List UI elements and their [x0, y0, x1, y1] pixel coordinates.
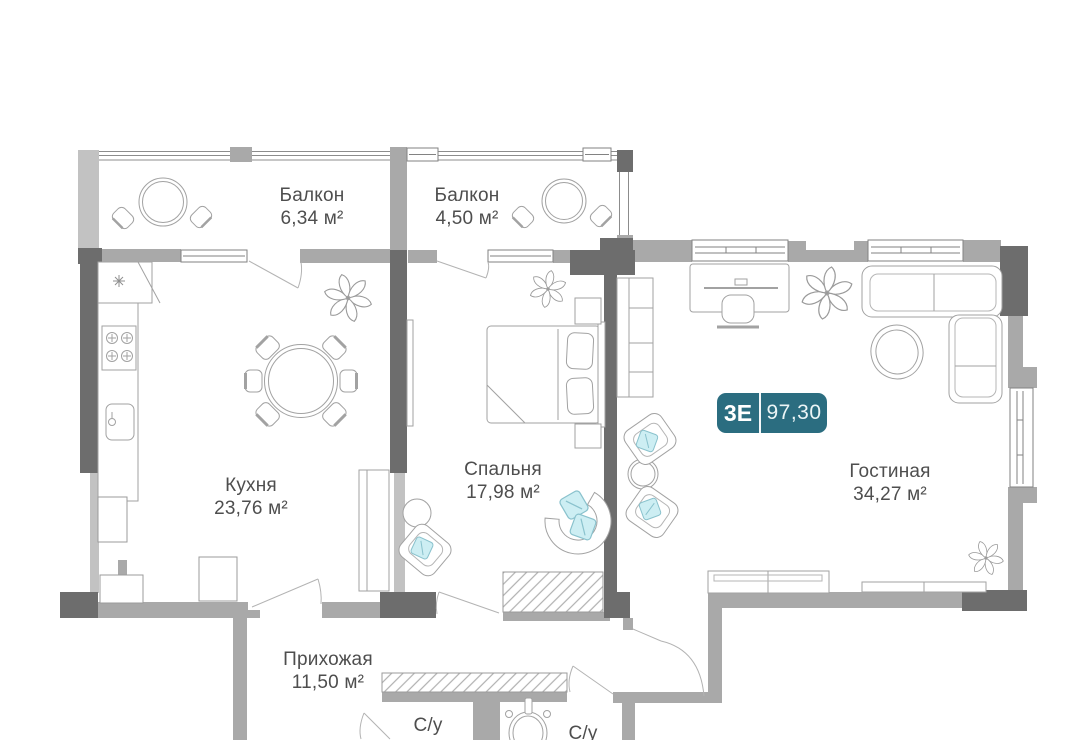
plan-badge: 3Е 97,30	[717, 393, 827, 433]
room-label-kitchen: Кухня 23,76 м²	[186, 474, 316, 520]
kitchen-sink	[106, 404, 134, 440]
bathroom1-door	[360, 713, 390, 739]
badge-separator	[759, 393, 761, 433]
room-area: 23,76 м²	[186, 497, 316, 520]
plant-icon	[319, 269, 378, 327]
bed	[487, 322, 605, 427]
room-area: 34,27 м²	[825, 483, 955, 506]
room-label-balcony-2: Балкон 4,50 м²	[402, 184, 532, 230]
room-name: Балкон	[402, 184, 532, 207]
badge-total-area: 97,30	[761, 401, 827, 425]
tv-stand	[708, 571, 829, 593]
room-name: Прихожая	[263, 648, 393, 671]
hallway-closet	[382, 673, 567, 692]
kitchen-cabinet	[359, 470, 389, 591]
bedroom-side-table	[403, 499, 431, 527]
fridge	[98, 262, 152, 303]
bathroom-fixtures	[506, 698, 551, 740]
room-area: 6,34 м²	[247, 207, 377, 230]
kitchen-furniture	[98, 262, 389, 603]
balcony-chair	[588, 203, 613, 228]
room-area: 17,98 м²	[438, 481, 568, 504]
bedroom-furniture	[395, 263, 611, 579]
plant-icon	[522, 263, 574, 315]
balcony2-table	[542, 179, 586, 223]
room-name: Кухня	[186, 474, 316, 497]
kitchen-balcony-door	[249, 261, 302, 288]
shaft-box	[199, 557, 237, 601]
room-name: С/у	[400, 714, 456, 737]
dining-chair	[340, 370, 357, 392]
room-name: Балкон	[247, 184, 377, 207]
bedroom-hall-door	[436, 592, 499, 614]
walls-mid	[98, 147, 1037, 740]
room-label-living: Гостиная 34,27 м²	[825, 460, 955, 506]
kitchen-hall-door	[252, 579, 321, 607]
plant-icon	[966, 538, 1007, 578]
room-name: Спальня	[438, 458, 568, 481]
shaft-box	[100, 575, 143, 603]
wardrobe	[617, 278, 653, 397]
room-name: С/у	[553, 722, 613, 740]
room-label-bathroom-1: С/у	[400, 714, 456, 737]
nightstand	[575, 424, 601, 448]
room-label-balcony-1: Балкон 6,34 м²	[247, 184, 377, 230]
bedroom-closet	[503, 572, 603, 612]
bathroom-sink	[506, 698, 551, 740]
low-cabinet	[862, 582, 986, 592]
floor-plan-drawing	[0, 0, 1065, 740]
balcony-chair	[110, 205, 135, 230]
bathroom2-door	[569, 666, 613, 694]
balcony-chair	[188, 204, 213, 229]
room-name: Гостиная	[825, 460, 955, 483]
room-area: 11,50 м²	[263, 671, 393, 694]
balcony1-table	[139, 178, 187, 226]
dining-chair	[245, 370, 262, 392]
room-label-bedroom: Спальня 17,98 м²	[438, 458, 568, 504]
bedroom-balcony-door	[437, 261, 489, 278]
plant-icon	[793, 260, 860, 326]
room-label-bathroom-2: С/у	[553, 722, 613, 740]
badge-type-label: 3Е	[717, 400, 759, 427]
desk-chair	[717, 295, 759, 327]
stove	[102, 326, 136, 370]
shaft-box	[98, 497, 127, 542]
tv	[407, 320, 413, 426]
room-area: 4,50 м²	[402, 207, 532, 230]
hall-living-door	[633, 629, 704, 696]
nightstand	[575, 298, 601, 324]
coffee-table	[865, 319, 929, 385]
room-label-hallway: Прихожая 11,50 м²	[263, 648, 393, 694]
dining-table	[265, 345, 338, 418]
floor-plan: Балкон 6,34 м² Балкон 4,50 м² Кухня 23,7…	[0, 0, 1065, 740]
